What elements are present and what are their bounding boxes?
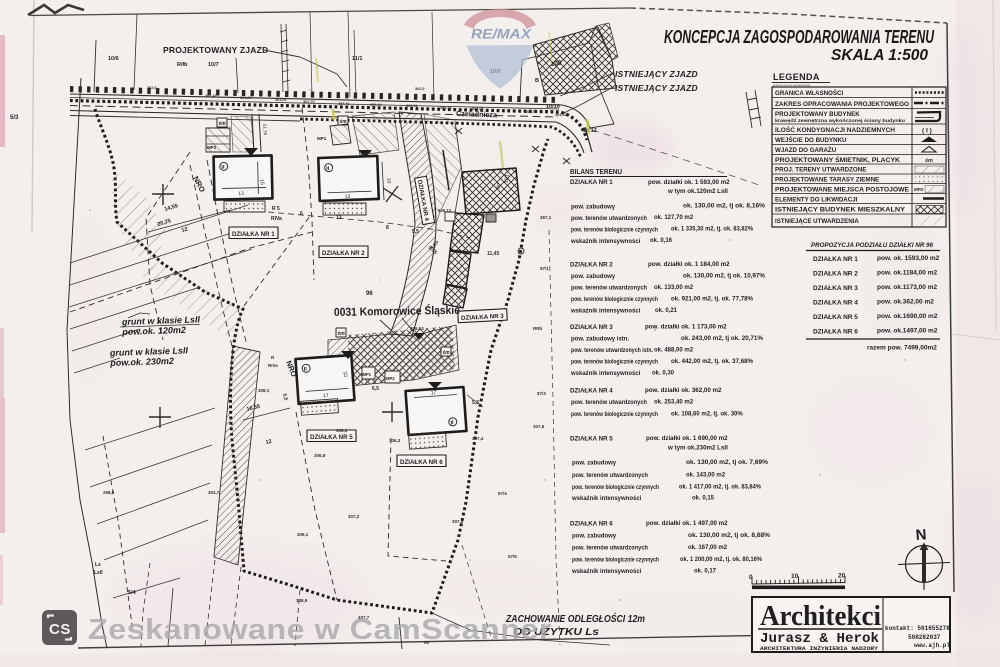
svg-text:307,2: 307,2 — [348, 514, 360, 519]
svg-text:WJAZD DO GARAŻU: WJAZD DO GARAŻU — [775, 147, 837, 154]
svg-text:306,53: 306,53 — [410, 326, 424, 331]
svg-text:DZIAŁKA NR 1: DZIAŁKA NR 1 — [232, 231, 275, 238]
svg-text:304,84: 304,84 — [240, 96, 253, 100]
svg-text:pow. zabudowy: pow. zabudowy — [571, 274, 616, 280]
svg-text:PROJEKTOWANY BUDYNEK: PROJEKTOWANY BUDYNEK — [775, 111, 860, 118]
svg-text:ZAKRES OPRACOWANIA PROJEKTOWEG: ZAKRES OPRACOWANIA PROJEKTOWEGO — [775, 101, 909, 108]
svg-text:5/4: 5/4 — [128, 590, 137, 596]
svg-text:304,02: 304,02 — [472, 107, 484, 111]
svg-text:101: 101 — [502, 174, 509, 184]
svg-text:ok. 0,15: ok. 0,15 — [692, 496, 715, 502]
svg-text:10/10: 10/10 — [546, 104, 560, 110]
svg-text:pow. zabudowy: pow. zabudowy — [572, 461, 617, 467]
svg-text:306,1: 306,1 — [297, 532, 309, 537]
svg-text:śm: śm — [219, 121, 227, 127]
svg-text:LEGENDA: LEGENDA — [773, 72, 820, 82]
svg-text:pow. terenów utwardzonych istn: pow. terenów utwardzonych istn. — [571, 348, 653, 354]
svg-text:śm: śm — [925, 158, 933, 164]
svg-text:DZIAŁKA NR 3: DZIAŁKA NR 3 — [570, 324, 613, 331]
svg-text:wskaźnik intensywności: wskaźnik intensywności — [570, 371, 641, 377]
svg-text:307,6: 307,6 — [533, 424, 545, 429]
svg-text:ok. 127,70 m2: ok. 127,70 m2 — [654, 215, 694, 221]
svg-text:RE/MAX: RE/MAX — [471, 27, 532, 42]
svg-text:17: 17 — [323, 393, 329, 399]
svg-text:ok. 243,00 m2, tj ok. 20,71%: ok. 243,00 m2, tj ok. 20,71% — [681, 336, 764, 342]
svg-text:96: 96 — [366, 291, 373, 297]
svg-text:( I ): ( I ) — [922, 128, 932, 135]
svg-text:13: 13 — [238, 191, 244, 197]
svg-text:RRb: RRb — [533, 326, 542, 331]
svg-text:pow. działki ok. 1 497,00 m2: pow. działki ok. 1 497,00 m2 — [646, 520, 728, 527]
svg-text:RIVa: RIVa — [268, 363, 278, 368]
svg-text:308,9: 308,9 — [296, 598, 308, 603]
svg-text:306,3: 306,3 — [336, 428, 348, 433]
svg-text:PROPOZYCJA PODZIAŁU DZIAŁKI NR: PROPOZYCJA PODZIAŁU DZIAŁKI NR 96 — [811, 242, 933, 249]
svg-text:Jurasz & Herok: Jurasz & Herok — [760, 632, 879, 647]
svg-text:20: 20 — [838, 573, 846, 580]
svg-text:304,41: 304,41 — [338, 102, 350, 106]
svg-text:5/3: 5/3 — [10, 115, 19, 121]
svg-text:302,41: 302,41 — [205, 94, 217, 98]
svg-text:ok. 1 335,30 m2, tj. ok. 83,82: ok. 1 335,30 m2, tj. ok. 83,82% — [671, 227, 754, 233]
svg-text:97/4: 97/4 — [498, 491, 507, 496]
svg-text:10/6: 10/6 — [108, 56, 119, 62]
svg-text:17: 17 — [431, 390, 437, 396]
svg-text:DZIAŁKA NR 6: DZIAŁKA NR 6 — [813, 329, 858, 336]
svg-text:97/3: 97/3 — [537, 391, 546, 396]
svg-text:ok. 0,16: ok. 0,16 — [650, 238, 673, 244]
svg-text:306,13: 306,13 — [438, 208, 451, 213]
svg-text:razem pow. 7499,00m2: razem pow. 7499,00m2 — [867, 345, 937, 352]
svg-text:PROJEKTOWANY ZJAZD: PROJEKTOWANY ZJAZD — [163, 45, 268, 55]
svg-text:ISTNIEJĄCY BUDYNEK MIESZKALNY: ISTNIEJĄCY BUDYNEK MIESZKALNY — [775, 207, 906, 214]
svg-text:ok. 442,00 m2, tj. ok. 37,68%: ok. 442,00 m2, tj. ok. 37,68% — [671, 359, 754, 365]
svg-text:MP2: MP2 — [386, 376, 395, 381]
svg-text:DZIAŁKA NR 4: DZIAŁKA NR 4 — [813, 300, 858, 307]
svg-text:pow. ok.1497,00 m2: pow. ok.1497,00 m2 — [877, 328, 938, 335]
svg-text:R 5: R 5 — [272, 206, 280, 212]
svg-text:pow. terenów utwardzonych: pow. terenów utwardzonych — [571, 400, 647, 406]
svg-text:pow. ok.1690,00 m2: pow. ok.1690,00 m2 — [877, 313, 938, 320]
svg-text:ARCHITEKTURA INŻYNIERIA NADZOR: ARCHITEKTURA INŻYNIERIA NADZORY — [760, 645, 879, 652]
svg-text:ok. 133,00 m2: ok. 133,00 m2 — [654, 285, 694, 291]
svg-text:pow. terenów utwardzonych: pow. terenów utwardzonych — [572, 473, 648, 479]
svg-text:298,8: 298,8 — [103, 490, 115, 495]
svg-text:301,70: 301,70 — [303, 100, 315, 104]
svg-text:57/5: 57/5 — [508, 554, 517, 559]
svg-text:wskaźnik intensywności: wskaźnik intensywności — [570, 239, 641, 245]
svg-text:Zeskanowane w CamScanner: Zeskanowane w CamScanner — [88, 614, 552, 646]
svg-text:śm: śm — [338, 331, 346, 337]
svg-text:wskaźnik intensywności: wskaźnik intensywności — [571, 569, 642, 575]
svg-text:302,0: 302,0 — [147, 86, 157, 90]
svg-text:DZIAŁKA NR 1: DZIAŁKA NR 1 — [570, 179, 613, 186]
svg-text:SKALA 1:500: SKALA 1:500 — [831, 47, 928, 64]
svg-text:RIVa: RIVa — [271, 216, 282, 222]
svg-text:ok. 921,00 m2, tj. ok. 77,78%: ok. 921,00 m2, tj. ok. 77,78% — [671, 297, 754, 303]
svg-text:pow. działki ok. 1 690,00 m2: pow. działki ok. 1 690,00 m2 — [646, 435, 728, 442]
svg-text:DZIAŁKA NR 6: DZIAŁKA NR 6 — [400, 459, 443, 466]
svg-text:wskaźnik intensywności: wskaźnik intensywności — [570, 309, 641, 315]
svg-text:ISTNIEJĄCE UTWARDZENIA: ISTNIEJĄCE UTWARDZENIA — [775, 218, 859, 225]
svg-text:pow. terenów biologicznie czyn: pow. terenów biologicznie czynnych — [571, 412, 658, 418]
svg-text:pow. terenów biologicznie czyn: pow. terenów biologicznie czynnych — [571, 297, 658, 303]
svg-text:pow. działki ok. 1 173,00 m2: pow. działki ok. 1 173,00 m2 — [645, 324, 727, 331]
svg-text:301,70: 301,70 — [525, 110, 537, 114]
svg-text:Architekci: Architekci — [760, 600, 881, 632]
svg-text:ELEMENTY DO LIKWIDACJI: ELEMENTY DO LIKWIDACJI — [775, 197, 858, 204]
svg-text:367,1: 367,1 — [540, 215, 552, 220]
svg-text:DZIAŁKA NR 1: DZIAŁKA NR 1 — [813, 256, 858, 263]
svg-text:0031 Komorowice Śląskie: 0031 Komorowice Śląskie — [334, 304, 460, 319]
svg-text:pow. ok.1184,00 m2: pow. ok.1184,00 m2 — [877, 270, 937, 277]
svg-text:ILOŚĆ KONDYGNACJI NADZIEMNYCH: ILOŚĆ KONDYGNACJI NADZIEMNYCH — [775, 126, 896, 134]
svg-text:10: 10 — [385, 178, 392, 184]
svg-text:307,8: 307,8 — [452, 519, 464, 524]
svg-text:ok. 488,00 m2: ok. 488,00 m2 — [654, 348, 694, 354]
svg-text:10/7: 10/7 — [208, 62, 219, 68]
svg-text:DZIAŁKA NR 2: DZIAŁKA NR 2 — [570, 262, 613, 269]
svg-text:DZIAŁKA NR 3: DZIAŁKA NR 3 — [813, 285, 858, 292]
svg-text:kontakt: 501655278: kontakt: 501655278 — [885, 625, 950, 632]
svg-text:pow. ok.362,00 m2: pow. ok.362,00 m2 — [877, 299, 934, 306]
svg-text:MP2: MP2 — [914, 187, 924, 192]
svg-text:97/1: 97/1 — [540, 266, 549, 271]
svg-text:pow. działki ok. 1 593,00 m2: pow. działki ok. 1 593,00 m2 — [648, 179, 730, 186]
svg-text:N: N — [915, 526, 927, 544]
svg-text:303,11: 303,11 — [406, 104, 417, 108]
svg-text:304,7: 304,7 — [208, 490, 220, 495]
svg-text:pow. terenów utwardzonych: pow. terenów utwardzonych — [571, 286, 647, 292]
svg-text:pow. ok.1173,00 m2: pow. ok.1173,00 m2 — [877, 284, 937, 291]
svg-text:PROJEKTOWANE MIEJSCA POSTOJOWE: PROJEKTOWANE MIEJSCA POSTOJOWE — [775, 187, 909, 194]
svg-text:nl2: nl2 — [495, 183, 501, 190]
svg-text:LsII: LsII — [94, 570, 103, 576]
svg-text:WEJŚCIE DO BUDYNKU: WEJŚCIE DO BUDYNKU — [775, 137, 847, 144]
svg-text:307,4: 307,4 — [472, 436, 484, 441]
svg-text:MP1: MP1 — [317, 136, 327, 141]
svg-text:MP2: MP2 — [207, 145, 217, 150]
svg-text:303,01: 303,01 — [275, 98, 287, 102]
svg-text:ok. 108,60 m2, tj. ok. 30%: ok. 108,60 m2, tj. ok. 30% — [671, 412, 743, 418]
svg-text:pow. zabudowy istn.: pow. zabudowy istn. — [571, 337, 629, 343]
svg-text:ok. 130,00 m2, tj ok. 7,69%: ok. 130,00 m2, tj ok. 7,69% — [686, 460, 769, 466]
svg-text:PROJ. TERENY UTWARDZONE: PROJ. TERENY UTWARDZONE — [775, 167, 866, 174]
svg-text:ok. 1 417,00 m2, tj. ok. 83,84: ok. 1 417,00 m2, tj. ok. 83,84% — [679, 485, 762, 491]
svg-text:8: 8 — [386, 225, 389, 231]
svg-text:12: 12 — [265, 439, 272, 446]
svg-text:301,44: 301,44 — [440, 106, 453, 110]
svg-text:pow. zabudowy: pow. zabudowy — [572, 534, 617, 540]
svg-text:MP1: MP1 — [363, 372, 372, 377]
svg-text:DZIAŁKA NR 5: DZIAŁKA NR 5 — [813, 314, 858, 321]
svg-text:ISTNIEJĄCY ZJAZD: ISTNIEJĄCY ZJAZD — [615, 69, 698, 79]
svg-text:306,3: 306,3 — [389, 438, 401, 443]
svg-text:pow. terenów utwardzonych: pow. terenów utwardzonych — [571, 216, 647, 222]
svg-text:CS: CS — [49, 621, 71, 638]
svg-text:Ls: Ls — [95, 562, 101, 568]
svg-text:PROJEKTOWANE TARASY ZIEMNE: PROJEKTOWANE TARASY ZIEMNE — [775, 177, 879, 184]
svg-text:pow. działki ok. 1 184,00 m2: pow. działki ok. 1 184,00 m2 — [648, 261, 730, 268]
svg-text:ok. 253,40 m2: ok. 253,40 m2 — [654, 400, 694, 406]
svg-text:DZIAŁKA NR 6: DZIAŁKA NR 6 — [570, 521, 613, 528]
svg-text:pow. terenów biologicznie czyn: pow. terenów biologicznie czynnych — [571, 228, 658, 234]
svg-text:ok. 130,00 m2, tj ok. 8,68%: ok. 130,00 m2, tj ok. 8,68% — [688, 533, 771, 539]
svg-text:6: 6 — [300, 211, 303, 217]
svg-text:304,02: 304,02 — [555, 113, 567, 117]
svg-text:DZIAŁKA NR 4: DZIAŁKA NR 4 — [570, 388, 613, 395]
svg-text:pow. terenów biologicznie czyn: pow. terenów biologicznie czynnych — [572, 558, 659, 564]
svg-text:306,8: 306,8 — [314, 453, 326, 458]
svg-text:ok. 130,00 m2, tj ok. 8,16%: ok. 130,00 m2, tj ok. 8,16% — [683, 204, 766, 210]
svg-text:ok. 0,30: ok. 0,30 — [652, 371, 675, 377]
svg-text:GRANICA WŁASNOŚCI: GRANICA WŁASNOŚCI — [775, 90, 843, 97]
svg-text:w tym ok.230m2 LsII: w tym ok.230m2 LsII — [667, 445, 728, 452]
svg-text:DZIAŁKA NR 5: DZIAŁKA NR 5 — [310, 434, 353, 441]
svg-text:krawędź zewnętrzna wykończonej: krawędź zewnętrzna wykończonej ściany bu… — [775, 118, 906, 123]
svg-text:pow. działki ok. 362,00 m2: pow. działki ok. 362,00 m2 — [645, 387, 722, 394]
svg-text:ok. 143,00 m2: ok. 143,00 m2 — [686, 473, 726, 479]
svg-text:10: 10 — [791, 573, 799, 580]
svg-text:508282037: 508282037 — [908, 634, 941, 641]
svg-text:11/1: 11/1 — [352, 56, 362, 62]
svg-text:13: 13 — [345, 194, 351, 200]
svg-text:BILANS TERENU: BILANS TERENU — [570, 167, 622, 176]
svg-text:wskaźnik intensywności: wskaźnik intensywności — [571, 496, 642, 502]
svg-text:ok. 0,17: ok. 0,17 — [694, 569, 717, 575]
svg-text:pow. terenów biologicznie czyn: pow. terenów biologicznie czynnych — [571, 360, 658, 366]
svg-text:pow. terenów biologicznie czyn: pow. terenów biologicznie czynnych — [572, 485, 659, 491]
svg-text:300,44: 300,44 — [370, 103, 383, 107]
svg-text:DZIAŁKA NR 5: DZIAŁKA NR 5 — [570, 436, 613, 443]
svg-text:302,9: 302,9 — [415, 87, 425, 91]
svg-text:KONCEPCJA ZAGOSPODAROWANIA TER: KONCEPCJA ZAGOSPODAROWANIA TERENU — [664, 27, 935, 47]
svg-text:pow. ok. 1593,00 m2: pow. ok. 1593,00 m2 — [877, 255, 940, 262]
svg-text:51,76: 51,76 — [262, 124, 268, 136]
svg-text:pow. terenów utwardzonych: pow. terenów utwardzonych — [572, 546, 648, 552]
svg-text:B: B — [535, 78, 539, 84]
svg-text:6,5: 6,5 — [372, 386, 379, 392]
svg-text:5,5: 5,5 — [412, 229, 419, 235]
svg-text:ISTNIEJĄCY ZJAZD: ISTNIEJĄCY ZJAZD — [615, 83, 698, 93]
svg-text:ok. 130,00 m2, tj ok. 10,97%: ok. 130,00 m2, tj ok. 10,97% — [683, 274, 766, 280]
svg-text:ok. 1 200,00 m2, tj. ok. 80,16: ok. 1 200,00 m2, tj. ok. 80,16% — [680, 557, 763, 563]
svg-text:11,45: 11,45 — [487, 251, 499, 257]
svg-text:PROJEKTOWANY ŚMIETNIK, PLACYK: PROJEKTOWANY ŚMIETNIK, PLACYK — [775, 157, 901, 164]
svg-text:DZIAŁKA NR 2: DZIAŁKA NR 2 — [322, 250, 365, 257]
svg-text:R/łb: R/łb — [177, 62, 188, 68]
svg-text:13: 13 — [336, 215, 342, 221]
svg-text:pow. zabudowy: pow. zabudowy — [571, 205, 616, 211]
svg-text:w tym ok.120m2 LsII: w tym ok.120m2 LsII — [667, 188, 728, 195]
svg-text:308,1: 308,1 — [258, 388, 270, 393]
svg-text:śm: śm — [443, 350, 451, 356]
svg-text:DZIAŁKA NR 2: DZIAŁKA NR 2 — [813, 271, 858, 278]
svg-text:www.ajh.pl: www.ajh.pl — [914, 642, 950, 649]
svg-text:ok. 167,00 m2: ok. 167,00 m2 — [688, 545, 728, 551]
svg-text:ok. 0,21: ok. 0,21 — [655, 308, 678, 314]
